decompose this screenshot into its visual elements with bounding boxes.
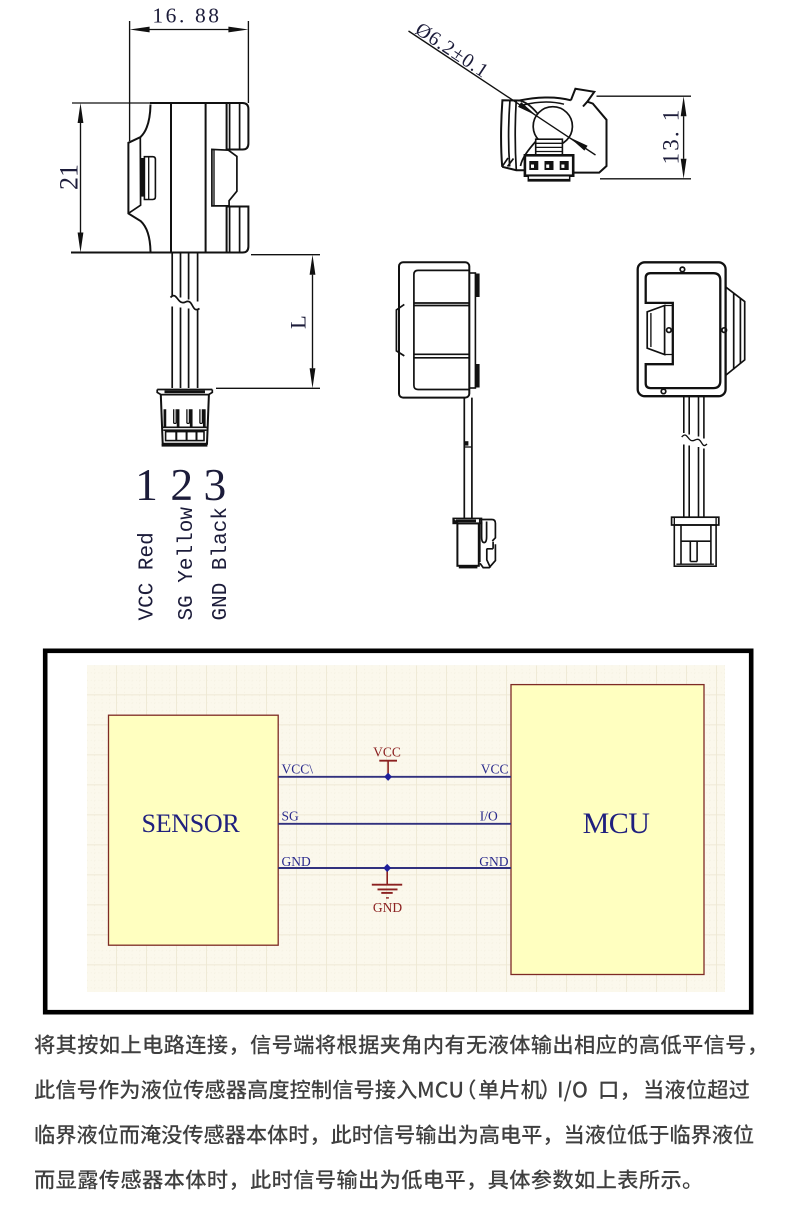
svg-text:2: 2 xyxy=(170,459,193,510)
svg-text:Ø6.2±0.1: Ø6.2±0.1 xyxy=(411,18,493,82)
svg-text:SENSOR: SENSOR xyxy=(142,809,241,838)
svg-text:VCC\: VCC\ xyxy=(282,762,314,777)
svg-text:VCC: VCC xyxy=(373,745,401,760)
svg-text:VCC: VCC xyxy=(481,762,509,777)
svg-text:VCC Red: VCC Red xyxy=(137,532,160,620)
svg-text:I/O: I/O xyxy=(480,809,498,824)
svg-text:MCU: MCU xyxy=(583,807,651,840)
svg-text:GND: GND xyxy=(479,854,508,869)
svg-text:21: 21 xyxy=(54,164,83,190)
svg-text:GND: GND xyxy=(282,854,311,869)
svg-text:13. 1: 13. 1 xyxy=(659,108,684,165)
svg-text:L: L xyxy=(286,315,311,329)
svg-text:16. 88: 16. 88 xyxy=(152,4,221,28)
svg-text:3: 3 xyxy=(204,459,227,510)
svg-text:GND: GND xyxy=(373,900,402,915)
svg-text:GND Black: GND Black xyxy=(210,507,233,620)
svg-text:SG Yellow: SG Yellow xyxy=(176,507,199,621)
svg-text:SG: SG xyxy=(282,809,300,824)
svg-text:1: 1 xyxy=(135,459,158,510)
